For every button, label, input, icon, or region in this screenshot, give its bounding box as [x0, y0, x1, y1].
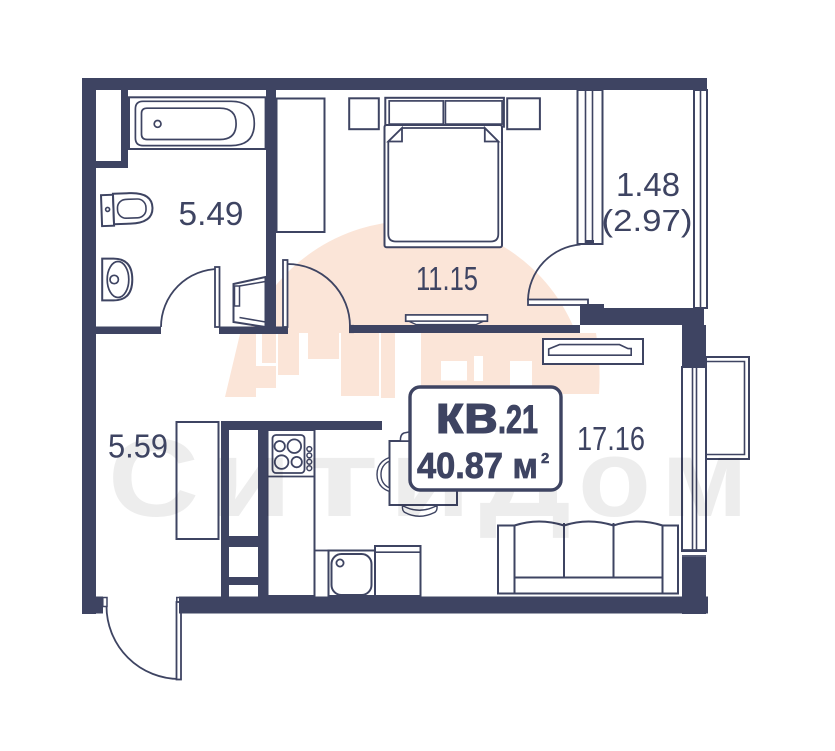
svg-text:5.49: 5.49 [179, 195, 244, 232]
svg-text:17.16: 17.16 [577, 420, 645, 457]
svg-text:5.59: 5.59 [108, 428, 168, 465]
svg-text:2: 2 [541, 450, 549, 467]
svg-text:11.15: 11.15 [416, 260, 478, 297]
svg-text:1.48: 1.48 [616, 166, 680, 203]
svg-text:(2.97): (2.97) [602, 204, 693, 238]
svg-text:40.87 м: 40.87 м [417, 445, 538, 486]
